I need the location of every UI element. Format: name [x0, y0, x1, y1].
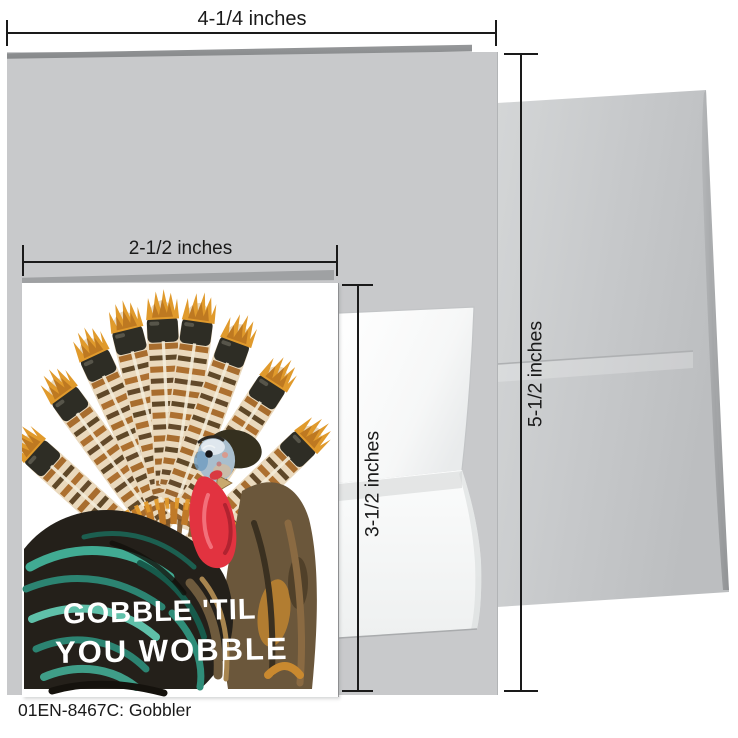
- measure-tick-bottom: [504, 690, 538, 692]
- measure-line: [7, 32, 497, 34]
- measure-label: 4-1/4 inches: [7, 8, 497, 31]
- small-card: GOBBLE 'TIL YOU WOBBLE: [22, 283, 338, 697]
- measure-line: [357, 286, 359, 692]
- measure-tick-bottom: [342, 690, 373, 692]
- measure-label: 3-1/2 inches: [362, 431, 385, 537]
- measure-tick-top: [342, 284, 373, 286]
- measure-line: [520, 54, 522, 691]
- measure-line: [23, 261, 338, 263]
- measure-label: 5-1/2 inches: [525, 321, 548, 427]
- message-line1: GOBBLE 'TIL: [63, 593, 257, 630]
- product-caption: 01EN-8467C: Gobbler: [18, 700, 191, 721]
- measure-label: 2-1/2 inches: [23, 238, 338, 260]
- product-mockup: GOBBLE 'TIL YOU WOBBLE 4-1/4 inches 2-1/…: [0, 0, 738, 738]
- turkey-illustration: GOBBLE 'TIL YOU WOBBLE: [22, 283, 338, 697]
- small-envelope-flap: [339, 307, 474, 483]
- measure-tick-top: [504, 53, 538, 55]
- small-envelope: [338, 300, 486, 645]
- message-line2: YOU WOBBLE: [55, 631, 289, 670]
